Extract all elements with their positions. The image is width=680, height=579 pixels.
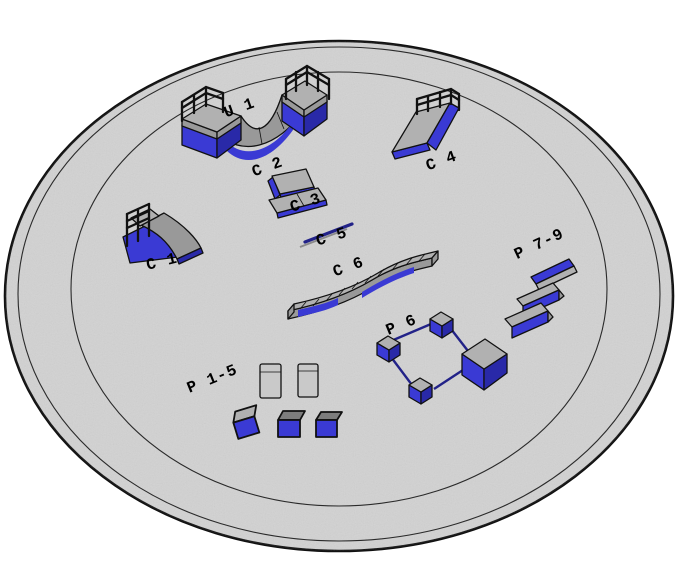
p1-5-pad2 — [298, 364, 318, 397]
p1-5-pad1 — [260, 364, 281, 398]
skatepark-3d-viewport: U 1 C 4 C 1 — [0, 0, 680, 579]
skatepark-3d-scene: U 1 C 4 C 1 — [0, 0, 680, 579]
